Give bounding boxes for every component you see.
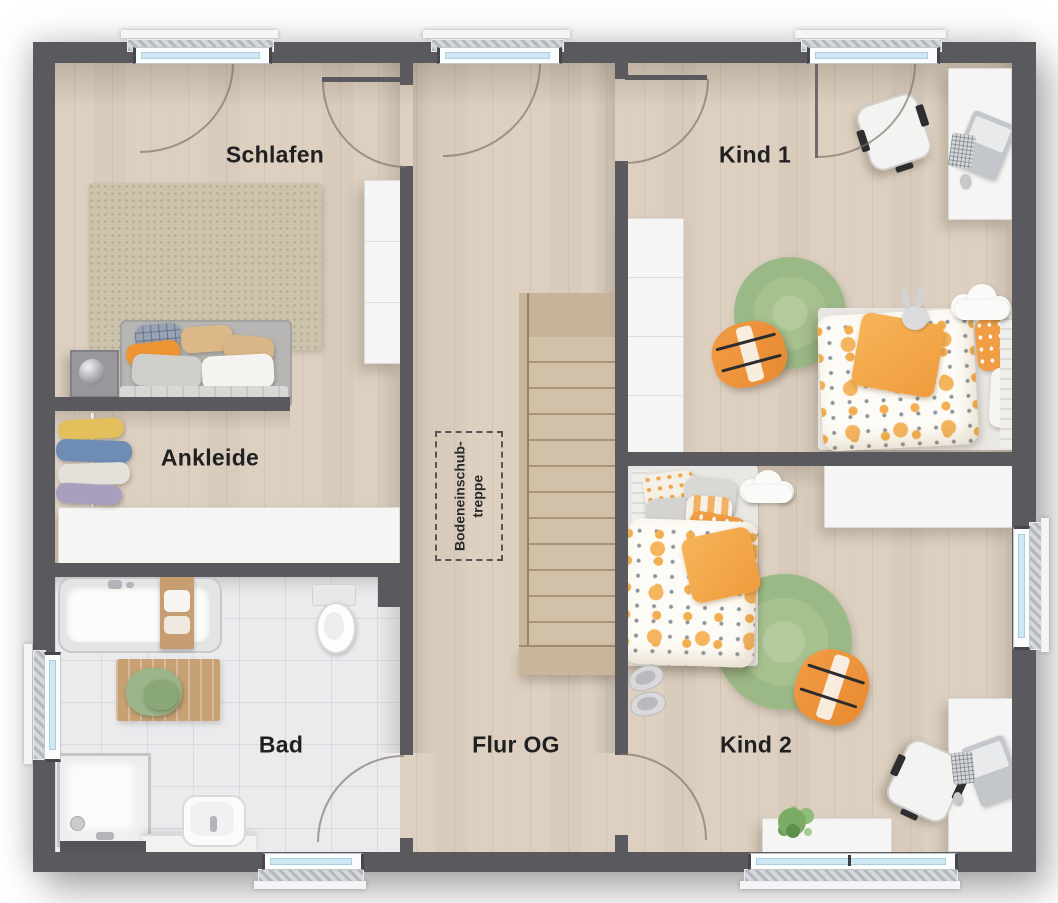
kind1-mouse [960,174,970,188]
caddy-towel-1 [164,590,190,612]
shower-niche [60,841,146,852]
wall-a-main [400,166,413,755]
window-ledge-kind2-right [1041,518,1049,652]
bathtub-caddy [160,577,194,649]
wall-toilet-stub [378,577,402,607]
kind1-keyboard [948,132,976,169]
wall-ankleide-bad [33,563,413,577]
bathtub-faucet [108,580,122,589]
wall-kind1-kind2 [615,452,1012,466]
window-mullion-kind2-bottom [848,855,851,866]
room-label-schlafen: Schlafen [226,142,324,169]
green-towel-fold [144,680,178,710]
window-sill-bad-bottom [258,869,364,882]
wall-schlafen-ankleide [33,397,290,411]
kind1-duvet-fold [850,311,946,398]
window-glass-schlafen [141,52,260,59]
window-ledge-bad-left [24,644,32,764]
window-glass-kind1 [815,52,928,59]
window-ledge-bad-bottom [254,881,366,889]
sink-tap [210,816,217,832]
door-leaf-schlafen [322,77,404,82]
shower-drain [70,816,85,831]
room-label-bad: Bad [259,732,303,759]
attic-stair-note-line2: treppe [470,475,486,518]
cloud-shelf-kind2 [740,470,796,508]
clothes-item-yellow [58,417,125,440]
room-label-flur: Flur OG [472,732,560,759]
kind2-keyboard [950,751,975,785]
table-lamp [79,359,105,385]
stair-top-landing [527,293,615,337]
stair-handrail [519,293,529,645]
window-ledge-schlafen [121,30,278,38]
window-ledge-kind2-bottom [740,881,960,889]
window-glass-bad-left [49,660,56,750]
toilet-bowl-inner [324,612,344,640]
window-glass-bad-bottom [270,858,352,865]
room-label-kind1: Kind 1 [719,142,791,169]
window-ledge-kind1 [795,30,946,38]
kind2-wardrobe [824,462,1014,528]
potted-plant [768,798,816,850]
clothes-item-blue [56,439,133,464]
bathtub-handle [126,582,134,588]
dressing-sideboard [58,507,400,565]
pillow-gray [131,353,203,389]
attic-stair-note: Bodeneinschub- treppe [435,431,503,561]
window-ledge-flur [423,30,570,38]
bunny-plush [902,306,928,330]
window-glass-kind2-right [1018,534,1025,638]
cloud-shelf-kind1 [951,284,1013,324]
window-sill-kind2-right [1029,522,1042,650]
stair-bottom-landing [519,645,616,675]
shower-faucet [96,832,114,840]
window-sill-kind2-bottom [744,869,958,882]
door-leaf-kind1 [625,75,707,80]
wall-exterior-right [1012,42,1036,872]
room-label-ankleide: Ankleide [161,445,259,472]
kind1-wardrobe [626,218,684,454]
window-glass-flur [445,52,550,59]
window-glass-kind2-bottom [756,858,946,865]
window-leaf-kind1 [815,63,818,158]
stair-treads [527,337,615,645]
floorplan-page: { "plan": { "type": "floorplan-upper-flo… [0,0,1058,903]
attic-stair-note-line1: Bodeneinschub- [452,441,468,551]
bedroom-wardrobe [364,180,402,364]
room-label-kind2: Kind 2 [720,732,792,759]
kind2-mouse [953,792,962,805]
clothes-item-purple [56,482,123,505]
caddy-towel-2 [164,616,190,634]
